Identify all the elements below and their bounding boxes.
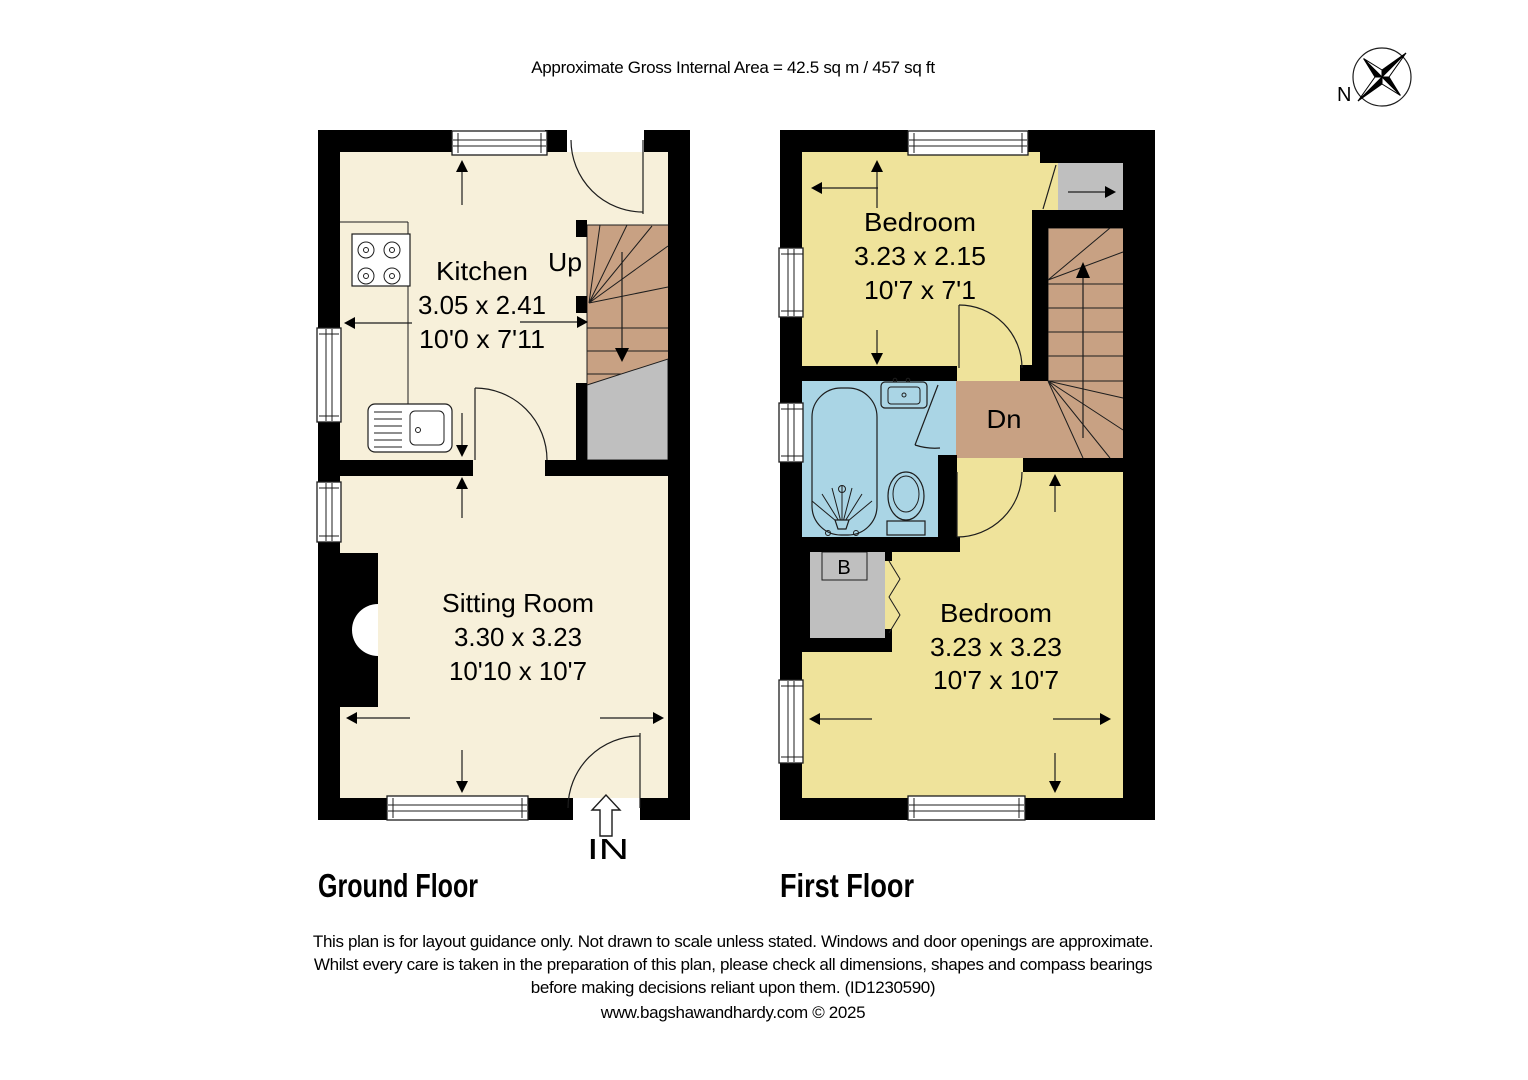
window xyxy=(779,248,803,317)
bedroom1-label: Bedroom xyxy=(864,207,976,237)
disclaimer-line-1: This plan is for layout guidance only. N… xyxy=(0,930,1466,953)
window xyxy=(908,131,1028,155)
disclaimer-line-3: before making decisions reliant upon the… xyxy=(0,976,1466,999)
kitchen-size-imperial: 10'0 x 7'11 xyxy=(419,324,545,354)
toilet-icon xyxy=(887,472,925,535)
entrance-arrow-icon xyxy=(592,795,620,836)
bedroom2-size-metric: 3.23 x 3.23 xyxy=(930,632,1062,662)
bedroom1-size-metric: 3.23 x 2.15 xyxy=(854,241,986,271)
window xyxy=(387,796,528,820)
storage-cupboard xyxy=(1058,163,1123,210)
first-floor-plan: Bedroom 3.23 x 2.15 10'7 x 7'1 Bedroom 3… xyxy=(770,125,1165,915)
bedroom2-label: Bedroom xyxy=(940,598,1052,628)
disclaimer-line-2: Whilst every care is taken in the prepar… xyxy=(0,953,1466,976)
window xyxy=(779,403,803,462)
boiler-label: B xyxy=(837,557,850,579)
kitchen-size-metric: 3.05 x 2.41 xyxy=(418,290,546,320)
stairs-up-label: Up xyxy=(548,247,582,277)
bedroom2-size-imperial: 10'7 x 10'7 xyxy=(933,665,1059,695)
hob-icon xyxy=(352,234,410,286)
bedroom1-size-imperial: 10'7 x 7'1 xyxy=(864,275,976,305)
compass-north-label: N xyxy=(1337,84,1351,106)
compass-rose: N xyxy=(1337,35,1429,127)
sink-icon xyxy=(368,404,452,452)
window xyxy=(779,680,803,763)
website-credit: www.bagshawandhardy.com © 2025 xyxy=(0,1001,1466,1024)
disclaimer: This plan is for layout guidance only. N… xyxy=(0,930,1466,1024)
window xyxy=(908,796,1025,820)
window xyxy=(317,482,341,542)
staircase-up xyxy=(587,225,668,385)
gross-internal-area-text: Approximate Gross Internal Area = 42.5 s… xyxy=(0,58,1466,78)
sitting-room-size-metric: 3.30 x 3.23 xyxy=(454,622,582,652)
ground-floor-plan: Kitchen 3.05 x 2.41 10'0 x 7'11 Sitting … xyxy=(310,125,700,915)
basin-icon xyxy=(881,378,927,408)
window xyxy=(317,328,341,422)
bathtub-icon xyxy=(812,388,877,536)
sitting-room-size-imperial: 10'10 x 10'7 xyxy=(449,656,587,686)
entrance-in-label: IN xyxy=(587,834,629,866)
stairs-down-label: Dn xyxy=(987,404,1022,434)
window xyxy=(452,131,547,155)
ground-floor-title: Ground Floor xyxy=(318,867,478,904)
kitchen-label: Kitchen xyxy=(436,256,528,286)
floorplan-document: Approximate Gross Internal Area = 42.5 s… xyxy=(0,0,1528,1080)
first-floor-title: First Floor xyxy=(780,867,914,904)
compass-star-icon xyxy=(1358,53,1406,101)
sitting-room-label: Sitting Room xyxy=(442,588,594,618)
